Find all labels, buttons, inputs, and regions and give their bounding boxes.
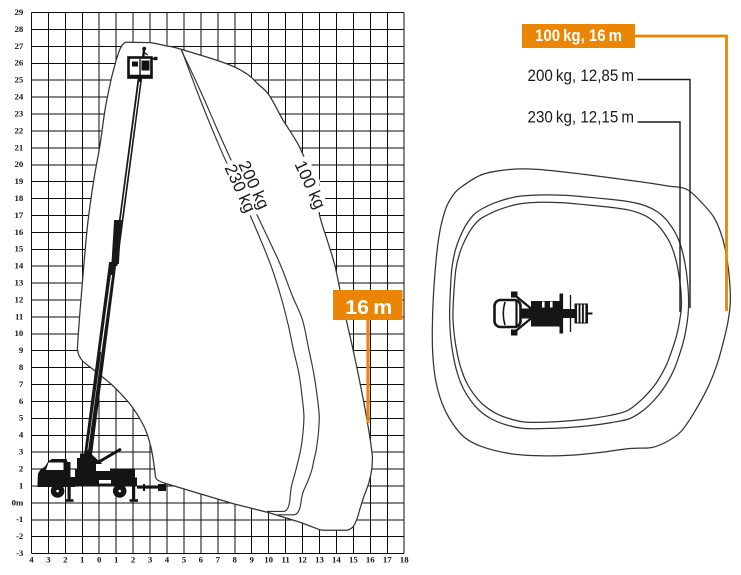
svg-text:-1: -1 bbox=[16, 514, 23, 524]
svg-text:-2: -2 bbox=[16, 531, 24, 541]
svg-text:17: 17 bbox=[15, 210, 24, 220]
svg-text:5: 5 bbox=[182, 555, 187, 565]
svg-text:19: 19 bbox=[15, 176, 24, 186]
svg-text:230 kg, 12,15 m: 230 kg, 12,15 m bbox=[528, 107, 635, 126]
svg-text:2: 2 bbox=[131, 555, 136, 565]
svg-text:3: 3 bbox=[46, 555, 51, 565]
svg-text:15: 15 bbox=[15, 244, 24, 254]
svg-text:0: 0 bbox=[97, 555, 102, 565]
svg-text:12: 12 bbox=[298, 555, 307, 565]
svg-text:10: 10 bbox=[264, 555, 273, 565]
svg-text:26: 26 bbox=[15, 58, 24, 68]
svg-text:23: 23 bbox=[15, 108, 24, 118]
svg-text:22: 22 bbox=[15, 125, 24, 135]
svg-text:3: 3 bbox=[19, 447, 24, 457]
svg-text:8: 8 bbox=[19, 362, 24, 372]
svg-text:18: 18 bbox=[15, 193, 24, 203]
svg-text:13: 13 bbox=[315, 555, 324, 565]
svg-text:9: 9 bbox=[19, 345, 24, 355]
svg-text:1: 1 bbox=[19, 480, 23, 490]
svg-text:11: 11 bbox=[15, 311, 23, 321]
svg-text:0m: 0m bbox=[12, 497, 24, 507]
svg-text:18: 18 bbox=[400, 555, 409, 565]
svg-text:100 kg, 16 m: 100 kg, 16 m bbox=[535, 26, 622, 45]
svg-text:1: 1 bbox=[80, 555, 84, 565]
svg-text:4: 4 bbox=[29, 555, 34, 565]
svg-text:3: 3 bbox=[148, 555, 153, 565]
svg-text:16 m: 16 m bbox=[345, 297, 392, 319]
svg-text:12: 12 bbox=[15, 294, 24, 304]
svg-text:21: 21 bbox=[15, 142, 24, 152]
svg-text:29: 29 bbox=[15, 7, 24, 17]
svg-text:10: 10 bbox=[15, 328, 24, 338]
svg-text:200 kg, 12,85 m: 200 kg, 12,85 m bbox=[528, 66, 635, 85]
svg-text:-3: -3 bbox=[16, 548, 24, 558]
svg-text:27: 27 bbox=[15, 41, 24, 51]
svg-text:17: 17 bbox=[383, 555, 392, 565]
svg-text:14: 14 bbox=[15, 261, 24, 271]
svg-text:2: 2 bbox=[63, 555, 68, 565]
svg-text:9: 9 bbox=[249, 555, 254, 565]
svg-text:28: 28 bbox=[15, 24, 24, 34]
svg-text:5: 5 bbox=[19, 413, 24, 423]
svg-text:16: 16 bbox=[366, 555, 375, 565]
svg-text:15: 15 bbox=[349, 555, 358, 565]
svg-text:25: 25 bbox=[15, 75, 24, 85]
svg-text:13: 13 bbox=[15, 278, 24, 288]
svg-text:2: 2 bbox=[19, 463, 24, 473]
svg-text:8: 8 bbox=[233, 555, 238, 565]
svg-text:20: 20 bbox=[15, 159, 24, 169]
svg-text:4: 4 bbox=[165, 555, 170, 565]
svg-text:11: 11 bbox=[281, 555, 289, 565]
svg-text:1: 1 bbox=[114, 555, 118, 565]
svg-text:24: 24 bbox=[15, 92, 24, 102]
svg-text:16: 16 bbox=[15, 227, 24, 237]
svg-text:7: 7 bbox=[216, 555, 221, 565]
svg-text:6: 6 bbox=[19, 396, 24, 406]
svg-text:14: 14 bbox=[332, 555, 341, 565]
svg-text:7: 7 bbox=[19, 379, 24, 389]
svg-text:4: 4 bbox=[19, 430, 24, 440]
svg-text:6: 6 bbox=[199, 555, 204, 565]
